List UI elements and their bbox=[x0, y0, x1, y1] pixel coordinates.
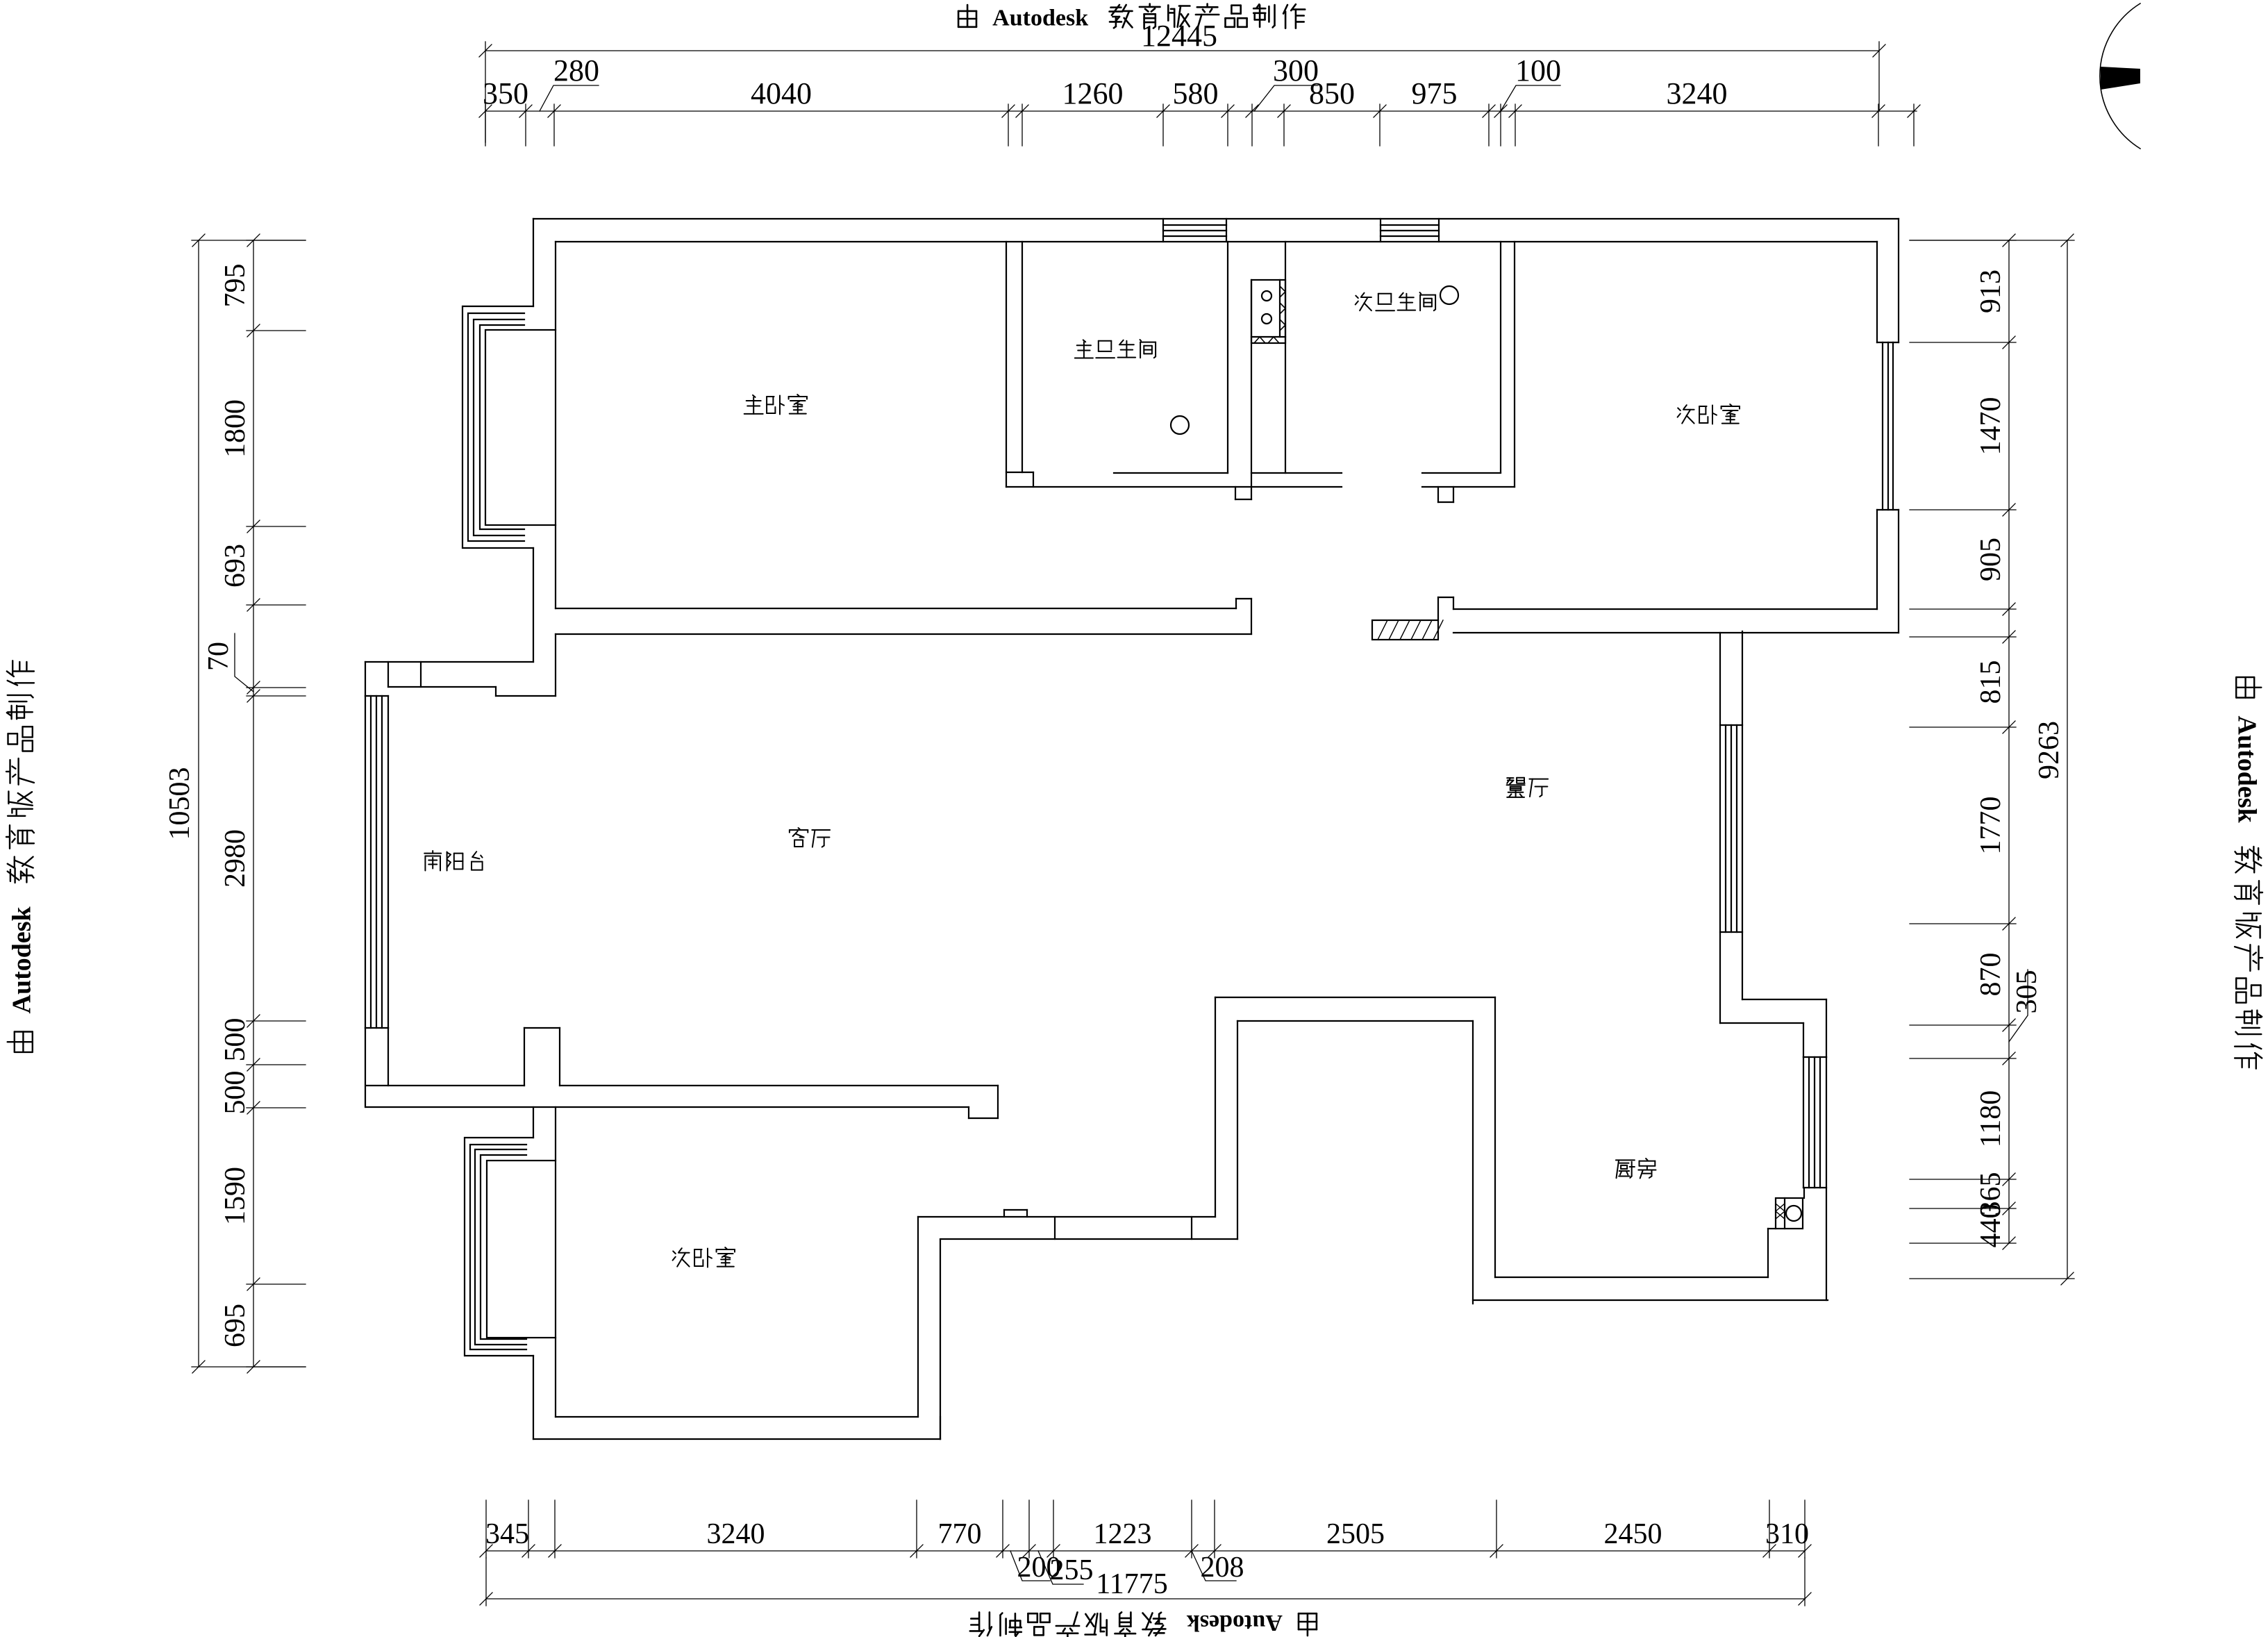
svg-text:913: 913 bbox=[1975, 269, 2007, 313]
svg-text:1590: 1590 bbox=[219, 1167, 251, 1225]
svg-text:280: 280 bbox=[553, 53, 599, 88]
svg-text:795: 795 bbox=[219, 264, 251, 308]
svg-text:500: 500 bbox=[219, 1071, 251, 1115]
svg-text:1770: 1770 bbox=[1975, 797, 2007, 855]
svg-text:1470: 1470 bbox=[1975, 397, 2007, 456]
svg-text:870: 870 bbox=[1975, 953, 2007, 997]
svg-text:693: 693 bbox=[219, 544, 251, 588]
svg-text:2980: 2980 bbox=[219, 829, 251, 888]
svg-text:975: 975 bbox=[1412, 76, 1458, 110]
svg-text:11775: 11775 bbox=[1096, 1568, 1167, 1600]
svg-text:580: 580 bbox=[1173, 76, 1219, 110]
svg-text:3240: 3240 bbox=[707, 1518, 765, 1550]
svg-text:10503: 10503 bbox=[164, 767, 196, 840]
svg-text:3240: 3240 bbox=[1667, 76, 1728, 110]
svg-text:12445: 12445 bbox=[1141, 19, 1217, 53]
svg-text:Autodesk: Autodesk bbox=[2232, 716, 2261, 824]
svg-text:100: 100 bbox=[1515, 53, 1561, 88]
svg-text:2450: 2450 bbox=[1604, 1518, 1662, 1550]
svg-text:1223: 1223 bbox=[1094, 1518, 1152, 1550]
svg-text:255: 255 bbox=[1050, 1554, 1094, 1586]
svg-text:Autodesk: Autodesk bbox=[992, 5, 1088, 31]
svg-text:305: 305 bbox=[2011, 970, 2043, 1014]
svg-text:Autodesk: Autodesk bbox=[8, 906, 37, 1013]
svg-text:4040: 4040 bbox=[751, 76, 812, 110]
svg-text:208: 208 bbox=[1201, 1552, 1244, 1584]
svg-text:350: 350 bbox=[483, 76, 528, 110]
svg-text:Autodesk: Autodesk bbox=[1187, 1610, 1283, 1636]
svg-text:310: 310 bbox=[1765, 1518, 1809, 1550]
svg-text:1260: 1260 bbox=[1062, 76, 1124, 110]
svg-text:345: 345 bbox=[485, 1518, 529, 1550]
svg-text:695: 695 bbox=[219, 1304, 251, 1347]
svg-text:300: 300 bbox=[1273, 53, 1319, 88]
svg-text:1800: 1800 bbox=[219, 399, 251, 458]
svg-text:2505: 2505 bbox=[1326, 1518, 1385, 1550]
svg-text:770: 770 bbox=[938, 1518, 982, 1550]
svg-text:440: 440 bbox=[1975, 1204, 2007, 1248]
svg-text:70: 70 bbox=[203, 642, 235, 671]
svg-text:1180: 1180 bbox=[1975, 1090, 2007, 1147]
svg-text:815: 815 bbox=[1975, 660, 2007, 704]
svg-text:500: 500 bbox=[219, 1018, 251, 1062]
svg-text:905: 905 bbox=[1975, 538, 2007, 581]
svg-text:9263: 9263 bbox=[2033, 721, 2065, 779]
